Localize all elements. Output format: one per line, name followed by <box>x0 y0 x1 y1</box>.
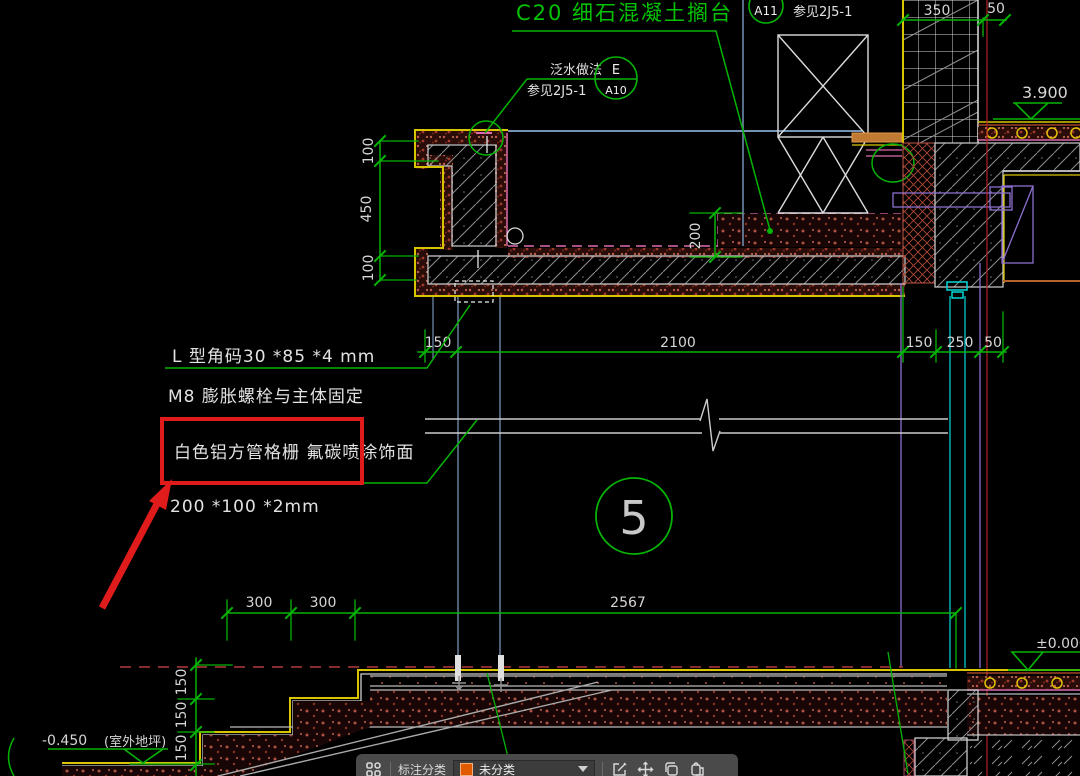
apps-grid-icon[interactable] <box>364 760 383 776</box>
interior-floor <box>967 673 1080 776</box>
toolbar-separator <box>602 762 603 776</box>
dim-label: 300 <box>246 595 273 611</box>
dim-middle: 150 2100 150 250 50 <box>418 287 1008 362</box>
elevation-value: ±0.000 <box>1036 636 1080 652</box>
dim-label: 200 <box>688 223 704 250</box>
bubble-top-text: E <box>612 63 620 78</box>
note-angle: L 型角码30 *85 *4 mm <box>172 347 375 367</box>
cad-viewport[interactable]: 350 50 100 450 100 200 <box>0 0 1080 776</box>
leader-dot <box>767 228 773 234</box>
dim-label: 100 <box>361 138 377 165</box>
dim-label: 150 <box>174 669 190 696</box>
upper-floor-layers <box>978 122 1080 140</box>
braced-column <box>778 35 868 213</box>
right-concrete <box>935 143 1080 287</box>
dim-label: 150 <box>174 735 190 762</box>
category-dropdown[interactable]: 未分类 <box>453 760 595 776</box>
title-note: C20 细石混凝土搁台 <box>516 1 733 25</box>
elevation-value: -0.450 <box>42 733 87 749</box>
annotation-arrow-shaft <box>102 504 157 608</box>
toolbar-separator <box>390 762 391 776</box>
category-value: 未分类 <box>479 761 572 776</box>
annotation-toolbar: 标注分类 未分类 <box>356 754 738 776</box>
dim-label: 50 <box>987 1 1005 17</box>
drain-circle <box>507 228 523 244</box>
ref-callout: A11 参见2J5-1 <box>749 0 852 23</box>
dim-label: 350 <box>924 3 951 19</box>
paste-icon[interactable] <box>688 760 707 776</box>
beam-concrete <box>428 145 496 246</box>
dim-label: 2100 <box>660 335 696 351</box>
note-text: 泛水做法 <box>550 63 602 78</box>
dim-label: 100 <box>361 255 377 282</box>
dim-label: 150 <box>906 335 933 351</box>
note-anchor: M8 膨胀螺栓与主体固定 <box>168 387 364 407</box>
column-bed-fill <box>718 214 902 247</box>
edit-icon[interactable] <box>610 760 629 776</box>
elevation-3900: 3.900 <box>993 83 1080 119</box>
detail-number-bubble: 5 <box>596 478 672 554</box>
detail-number-text: 5 <box>619 491 648 545</box>
copy-icon[interactable] <box>662 760 681 776</box>
elevation-value: 3.900 <box>1022 83 1068 102</box>
move-icon[interactable] <box>636 760 655 776</box>
bubble-label: A11 <box>754 4 777 18</box>
dim-label: 300 <box>310 595 337 611</box>
category-color-swatch <box>460 763 473 776</box>
dim-label: 150 <box>174 702 190 729</box>
bubble-bottom-text: A10 <box>605 84 627 97</box>
note-size: 200 *100 *2mm <box>170 497 320 517</box>
note-grille: 白色铝方管格栅 氟碳喷涂饰面 <box>174 443 414 463</box>
cad-drawing: 350 50 100 450 100 200 <box>0 0 1080 776</box>
note-text: 参见2J5-1 <box>527 83 586 99</box>
flashing-callout: 泛水做法 参见2J5-1 E A10 <box>485 57 637 133</box>
dim-bottom: 300 300 2567 <box>222 595 961 668</box>
category-label: 标注分类 <box>398 761 446 776</box>
dim-label: 50 <box>984 335 1002 351</box>
note-text: 参见2J5-1 <box>793 4 852 20</box>
grille-break-lines <box>425 399 948 451</box>
brick-strip <box>903 143 935 283</box>
paren-mark <box>9 738 15 776</box>
masonry-wall <box>903 0 978 143</box>
elevation-zero: ±0.000 <box>1008 636 1080 670</box>
chevron-down-icon <box>578 766 588 772</box>
dim-label: 450 <box>359 196 375 223</box>
dim-label: 2567 <box>610 595 646 611</box>
elevation-ground: -0.450 (室外地坪) <box>42 733 168 763</box>
dim-label: 250 <box>947 335 974 351</box>
slab-concrete <box>428 256 905 284</box>
elevation-note: (室外地坪) <box>104 734 166 750</box>
